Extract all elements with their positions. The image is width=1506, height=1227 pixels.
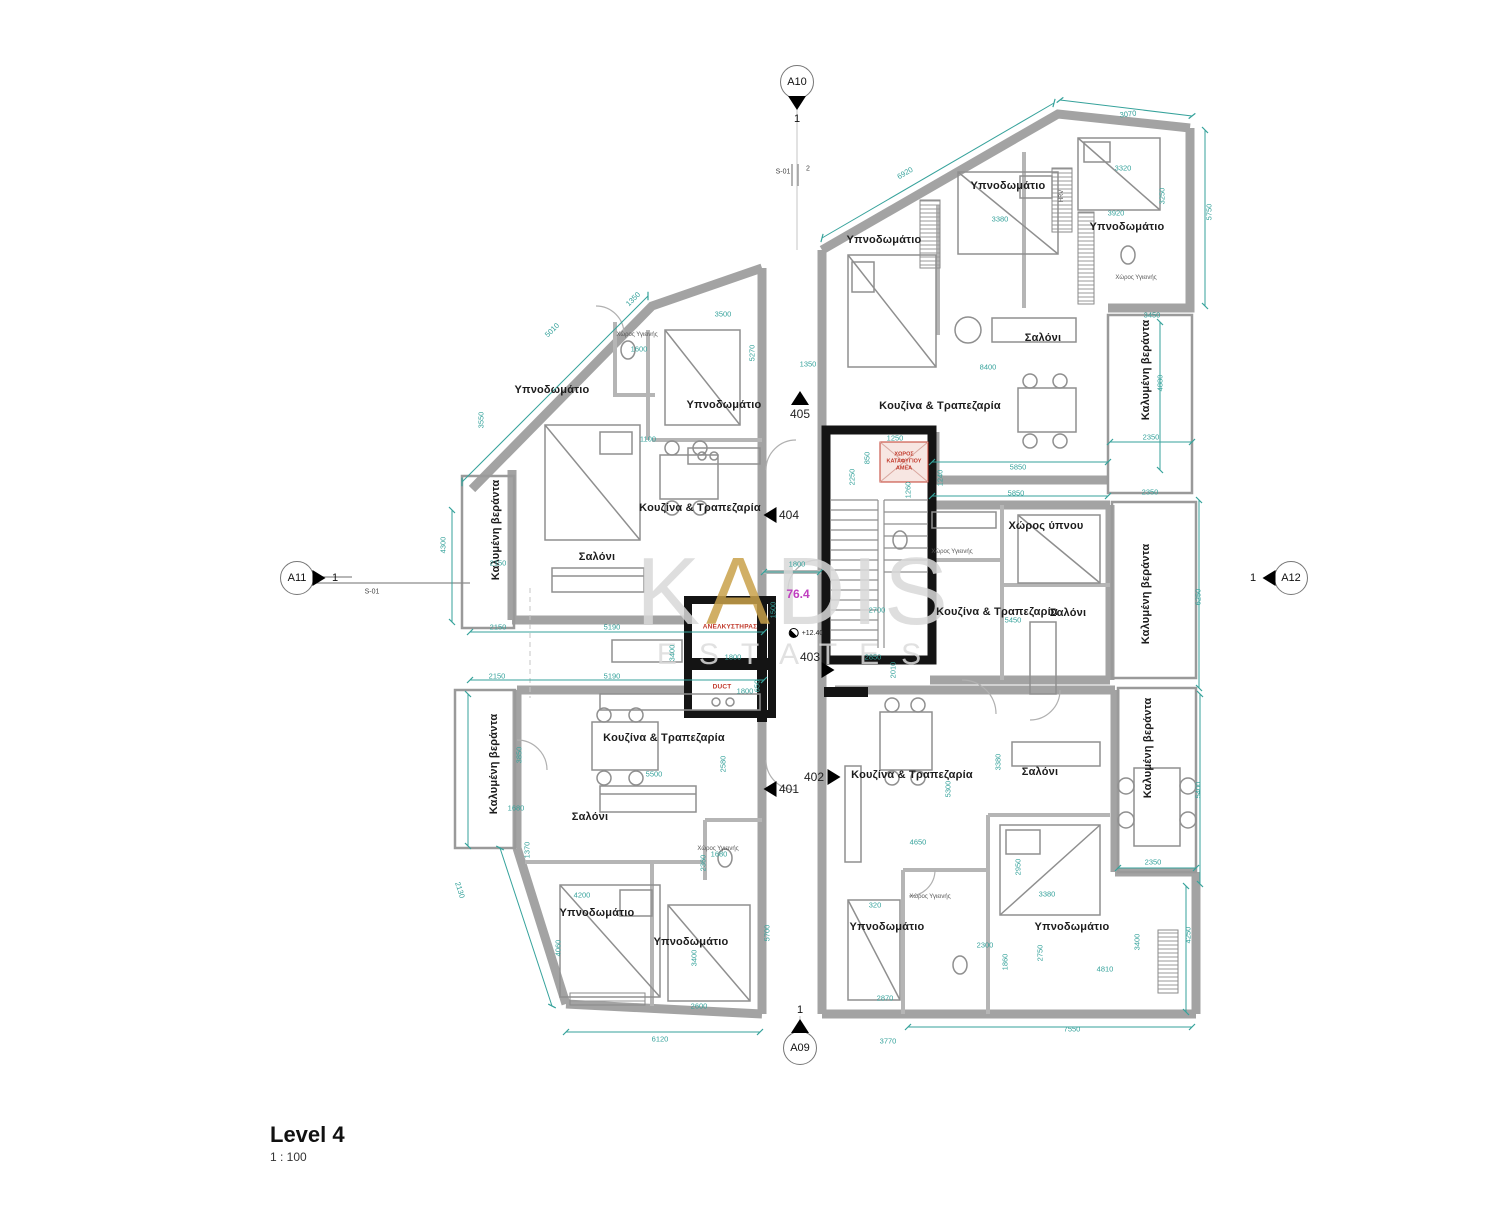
section-line-label-top: S-01 xyxy=(776,169,791,176)
unit-tag-405: 405 xyxy=(790,407,810,421)
drawing-scale: 1 : 100 xyxy=(270,1150,345,1164)
section-cut-arrow-a10 xyxy=(788,96,806,110)
elevator-label: ΑΝΕΛΚΥΣΤΗΡΑΣ xyxy=(703,624,758,631)
level-value: +12.40 xyxy=(802,630,824,637)
section-marker-a09: A09 xyxy=(783,1031,817,1065)
section-marker-a12: A12 xyxy=(1274,561,1308,595)
unit-tag-403: 403 xyxy=(800,650,820,664)
unit-tag-404: 404 xyxy=(779,508,799,522)
section-number-a11: 1 xyxy=(332,572,338,584)
title-block: Level 4 1 : 100 xyxy=(270,1122,345,1164)
unit-404-arrow-icon xyxy=(764,507,777,523)
section-marker-a11: A11 xyxy=(280,561,314,595)
duct-label: DUCT xyxy=(713,684,732,691)
level-marker-icon xyxy=(789,628,799,638)
section-number-a10: 1 xyxy=(794,113,800,125)
unit-401-arrow-icon xyxy=(764,781,777,797)
unit-403-arrow-icon xyxy=(822,662,835,678)
section-cut-arrow-a11 xyxy=(313,570,326,586)
unit-tag-402: 402 xyxy=(804,770,824,784)
floor-plan-drawing xyxy=(0,0,1506,1227)
floor-plan-canvas: KADIS ESTATES ΥπνοδωμάτιοΥπνοδωμάτιοΥπνο… xyxy=(0,0,1506,1227)
section-number-a12: 1 xyxy=(1250,572,1256,584)
section-cut-arrow-a12 xyxy=(1263,570,1276,586)
unit-tag-401: 401 xyxy=(779,782,799,796)
area-value: 76.4 xyxy=(786,587,809,601)
section-cut-arrow-a09 xyxy=(791,1019,809,1033)
level-annotation: +12.40 xyxy=(789,628,824,638)
section-line-detail-top: 2 xyxy=(806,166,810,173)
unit-405-arrow-icon xyxy=(791,391,809,405)
unit-402-arrow-icon xyxy=(828,769,841,785)
drawing-title: Level 4 xyxy=(270,1122,345,1148)
section-line-label-left: S-01 xyxy=(365,589,380,596)
section-number-a09: 1 xyxy=(797,1004,803,1016)
refuge-area-label: ΧΩΡΟΣ ΚΑΤΑΦΥΓΙΟΥ ΑΜΕΑ xyxy=(881,452,927,473)
section-marker-a10: A10 xyxy=(780,65,814,99)
